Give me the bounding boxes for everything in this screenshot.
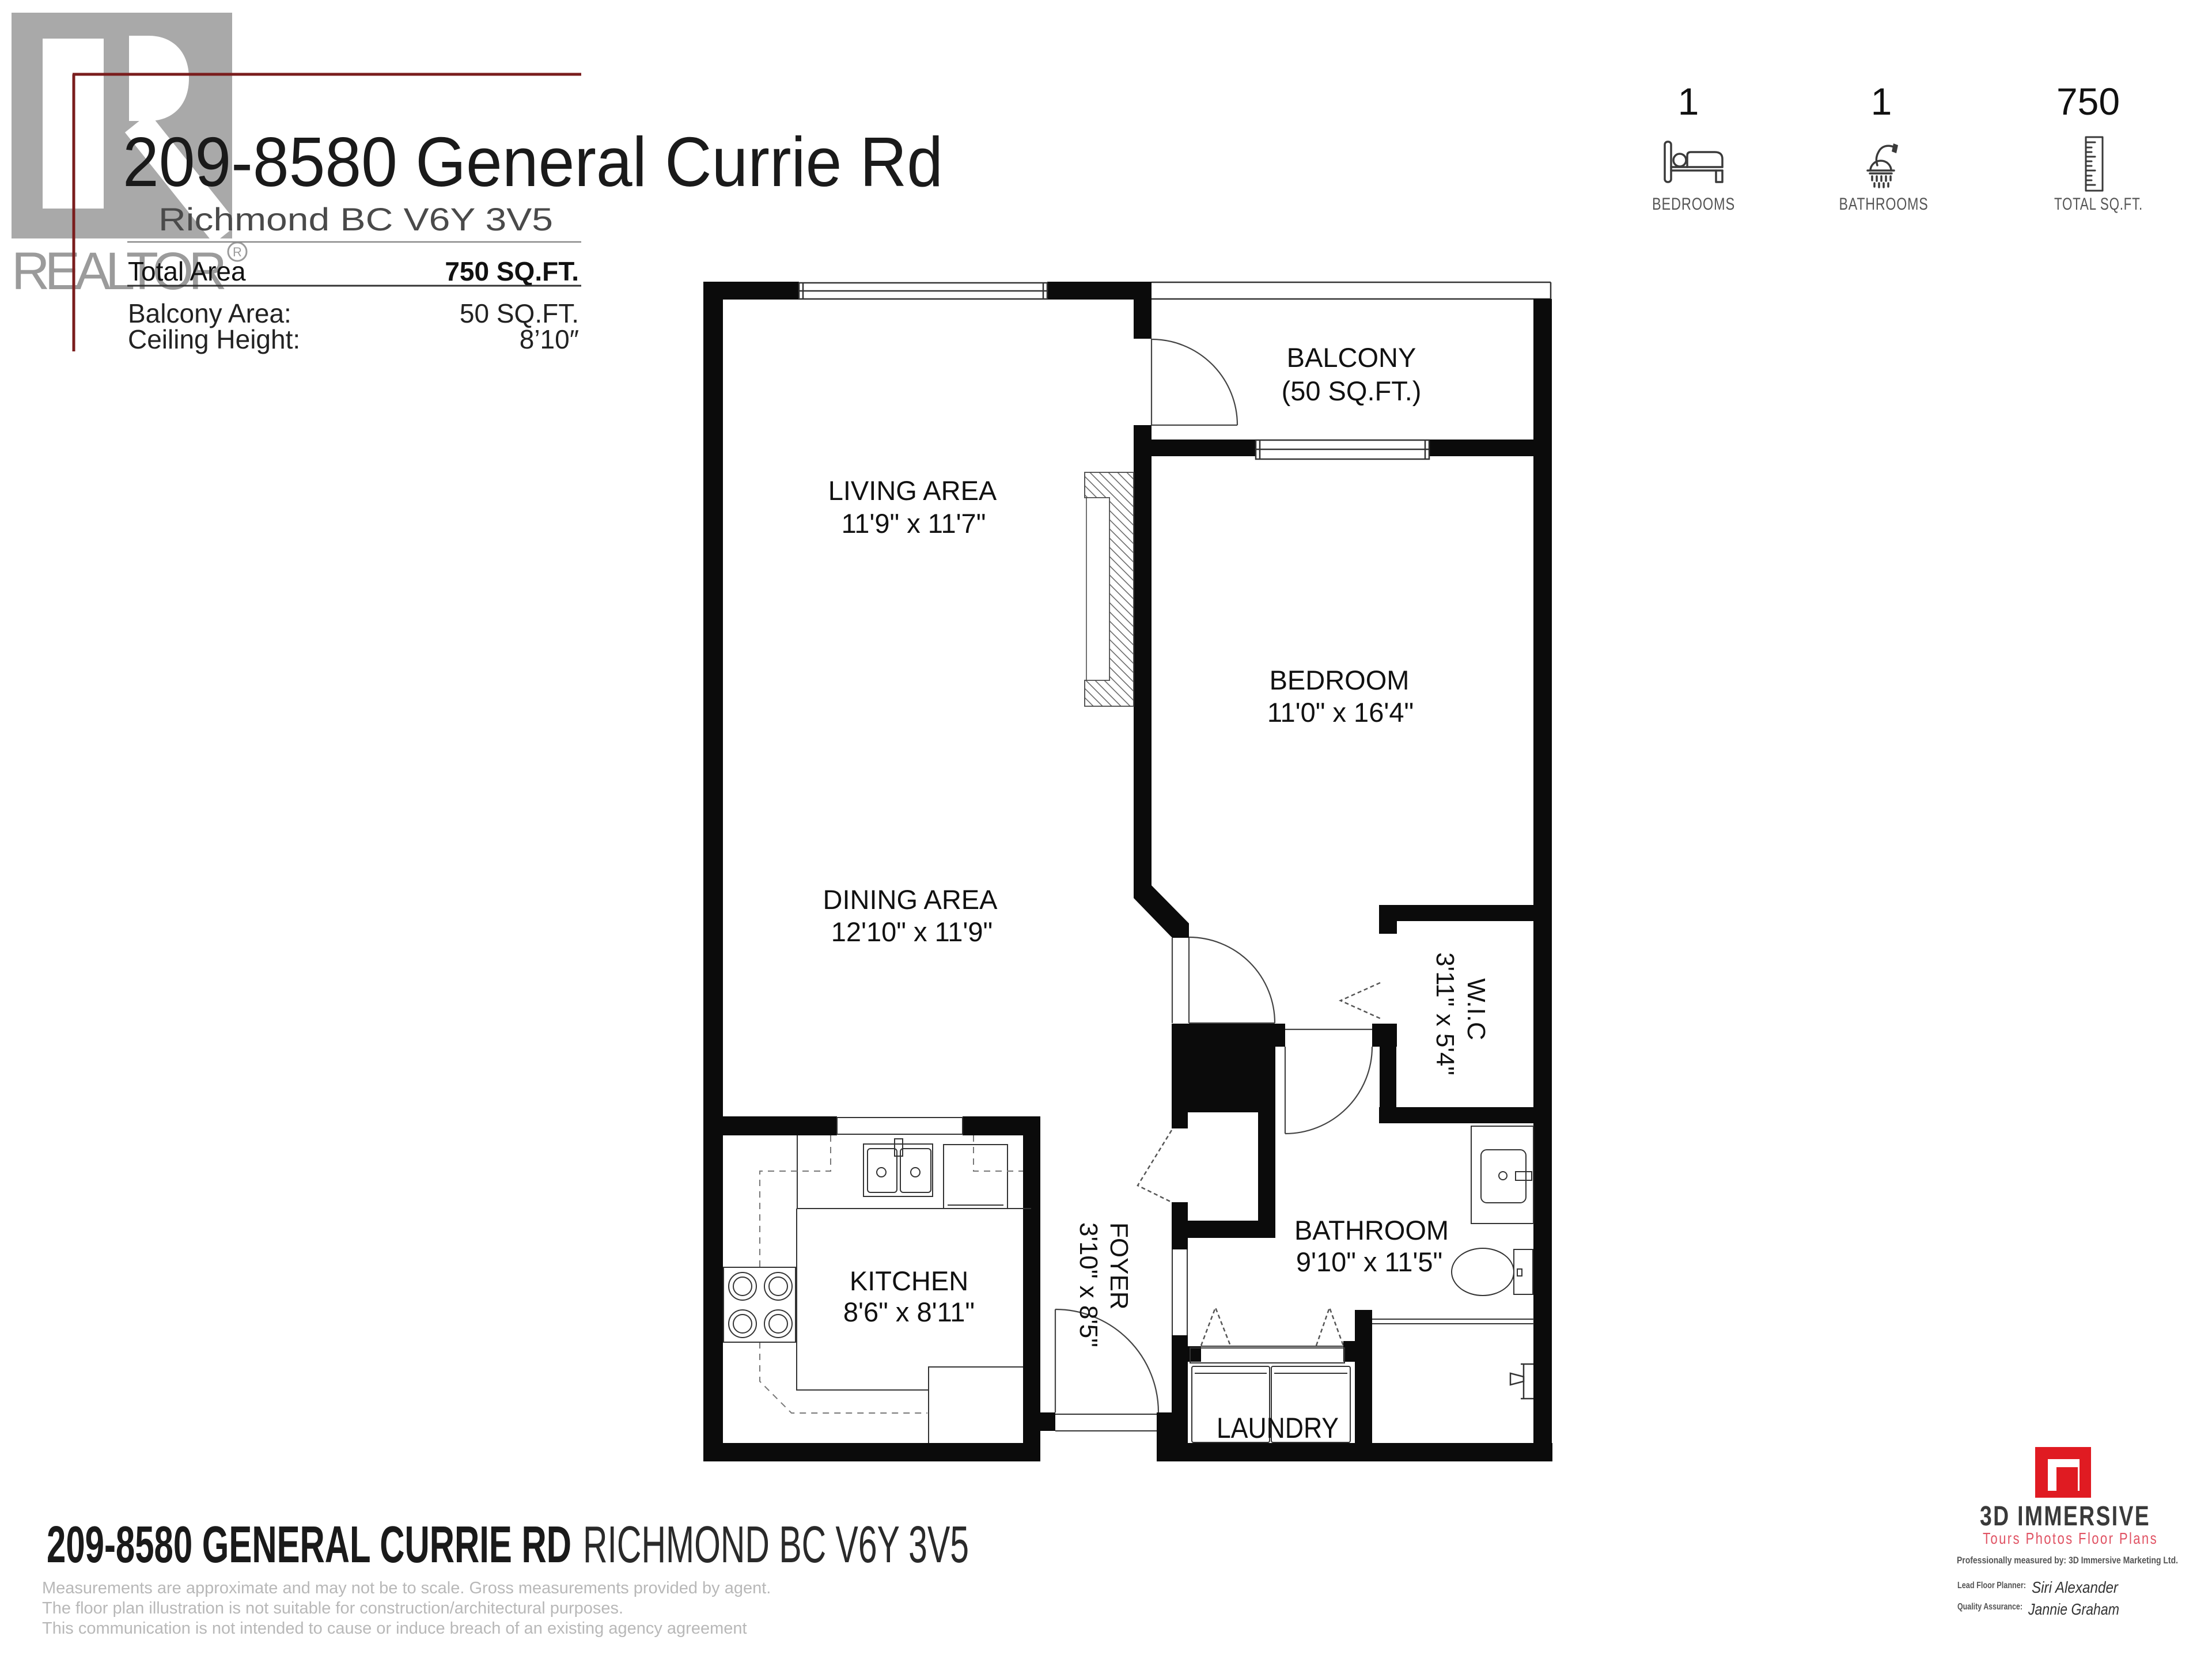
svg-text:1: 1 — [1678, 80, 1699, 123]
svg-text:Total Area: Total Area — [128, 256, 246, 286]
svg-text:1: 1 — [1871, 80, 1892, 123]
svg-text:BEDROOMS: BEDROOMS — [1652, 195, 1735, 214]
svg-text:BEDROOM: BEDROOM — [1270, 665, 1410, 695]
svg-text:Measurements are approximate a: Measurements are approximate and may not… — [42, 1579, 771, 1597]
svg-text:3'11" x 5'4": 3'11" x 5'4" — [1431, 952, 1459, 1075]
svg-text:BALCONY: BALCONY — [1287, 342, 1416, 373]
svg-text:Siri Alexander: Siri Alexander — [2032, 1578, 2119, 1596]
svg-text:12'10" x 11'9": 12'10" x 11'9" — [831, 916, 993, 947]
svg-text:11'0" x 16'4": 11'0" x 16'4" — [1267, 697, 1414, 728]
svg-text:Professionally measured by: 3D: Professionally measured by: 3D Immersive… — [1957, 1555, 2178, 1566]
svg-text:209-8580 General Currie Rd: 209-8580 General Currie Rd — [123, 123, 943, 201]
svg-text:This communication is not inte: This communication is not intended to ca… — [42, 1619, 747, 1638]
svg-text:TOTAL SQ.FT.: TOTAL SQ.FT. — [2054, 195, 2143, 214]
svg-text:KITCHEN: KITCHEN — [850, 1266, 968, 1296]
svg-text:BATHROOM: BATHROOM — [1294, 1215, 1449, 1245]
svg-text:W.I.C: W.I.C — [1462, 978, 1490, 1040]
svg-text:LIVING AREA: LIVING AREA — [828, 475, 997, 506]
svg-text:3D IMMERSIVE: 3D IMMERSIVE — [1980, 1501, 2150, 1532]
svg-text:9'10" x 11'5": 9'10" x 11'5" — [1296, 1247, 1442, 1277]
svg-text:750: 750 — [2056, 80, 2120, 123]
svg-text:Richmond BC V6Y 3V5: Richmond BC V6Y 3V5 — [158, 201, 553, 237]
svg-text:Quality Assurance:: Quality Assurance: — [1957, 1602, 2022, 1612]
svg-text:Jannie Graham: Jannie Graham — [2028, 1600, 2119, 1618]
svg-text:RICHMOND BC V6Y 3V5: RICHMOND BC V6Y 3V5 — [583, 1516, 969, 1574]
svg-text:8'6" x 8'11": 8'6" x 8'11" — [843, 1297, 975, 1327]
svg-text:BATHROOMS: BATHROOMS — [1839, 195, 1929, 214]
svg-text:Tours Photos Floor Plans: Tours Photos Floor Plans — [1983, 1529, 2158, 1547]
svg-text:Lead Floor Planner:: Lead Floor Planner: — [1957, 1581, 2026, 1590]
svg-text:FOYER: FOYER — [1105, 1222, 1133, 1310]
svg-text:8’10″: 8’10″ — [520, 324, 579, 354]
svg-text:3'10" x 8'5": 3'10" x 8'5" — [1074, 1222, 1103, 1347]
svg-text:Ceiling Height:: Ceiling Height: — [128, 324, 300, 354]
svg-text:209-8580 GENERAL CURRIE RD: 209-8580 GENERAL CURRIE RD — [47, 1516, 571, 1574]
svg-text:(50 SQ.FT.): (50 SQ.FT.) — [1282, 376, 1422, 406]
svg-text:750 SQ.FT.: 750 SQ.FT. — [445, 256, 579, 286]
svg-text:DINING AREA: DINING AREA — [823, 884, 998, 915]
svg-text:The floor plan illustration is: The floor plan illustration is not suita… — [42, 1599, 623, 1618]
svg-text:LAUNDRY: LAUNDRY — [1217, 1412, 1339, 1444]
svg-text:11'9" x 11'7": 11'9" x 11'7" — [842, 508, 986, 539]
